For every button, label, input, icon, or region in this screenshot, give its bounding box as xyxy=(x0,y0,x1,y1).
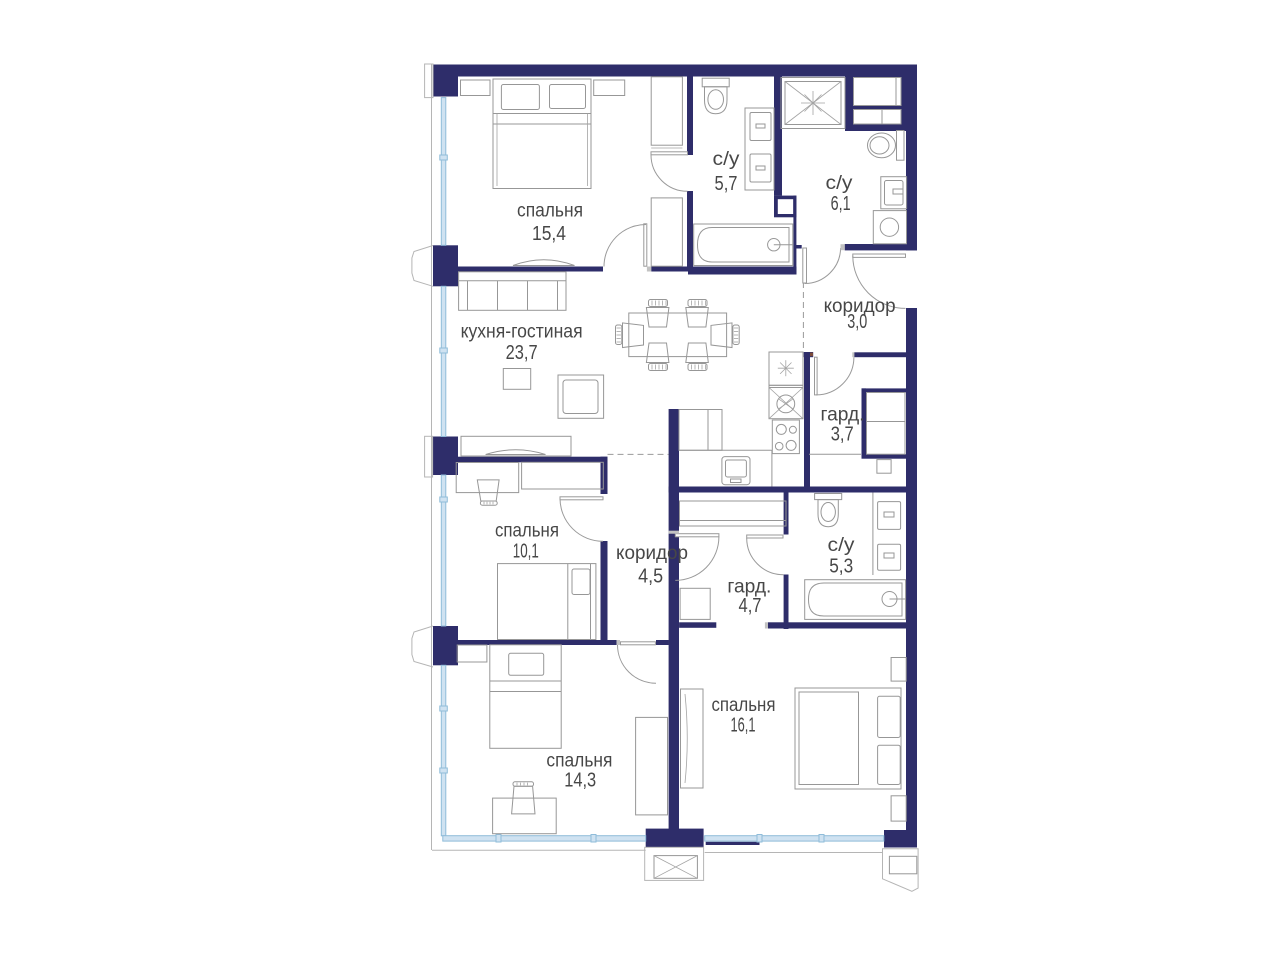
svg-text:4,7: 4,7 xyxy=(739,595,762,617)
svg-text:14,3: 14,3 xyxy=(564,770,596,792)
svg-text:спальня: спальня xyxy=(517,201,583,222)
svg-text:спальня: спальня xyxy=(546,751,612,772)
svg-text:15,4: 15,4 xyxy=(532,223,566,245)
svg-text:3,7: 3,7 xyxy=(831,423,854,445)
svg-text:спальня: спальня xyxy=(495,521,559,542)
svg-text:4,5: 4,5 xyxy=(638,565,663,587)
svg-text:3,0: 3,0 xyxy=(847,311,867,333)
svg-text:с/у: с/у xyxy=(713,149,741,170)
svg-text:10,1: 10,1 xyxy=(513,541,539,563)
svg-text:с/у: с/у xyxy=(828,535,856,556)
svg-text:16,1: 16,1 xyxy=(731,715,756,737)
svg-text:5,7: 5,7 xyxy=(715,173,738,195)
svg-text:с/у: с/у xyxy=(826,173,854,194)
svg-text:23,7: 23,7 xyxy=(506,342,538,364)
svg-text:5,3: 5,3 xyxy=(829,556,853,578)
svg-text:6,1: 6,1 xyxy=(831,193,851,215)
svg-text:спальня: спальня xyxy=(712,695,776,716)
svg-text:кухня-гостиная: кухня-гостиная xyxy=(461,321,583,342)
svg-text:коридор: коридор xyxy=(616,543,688,564)
